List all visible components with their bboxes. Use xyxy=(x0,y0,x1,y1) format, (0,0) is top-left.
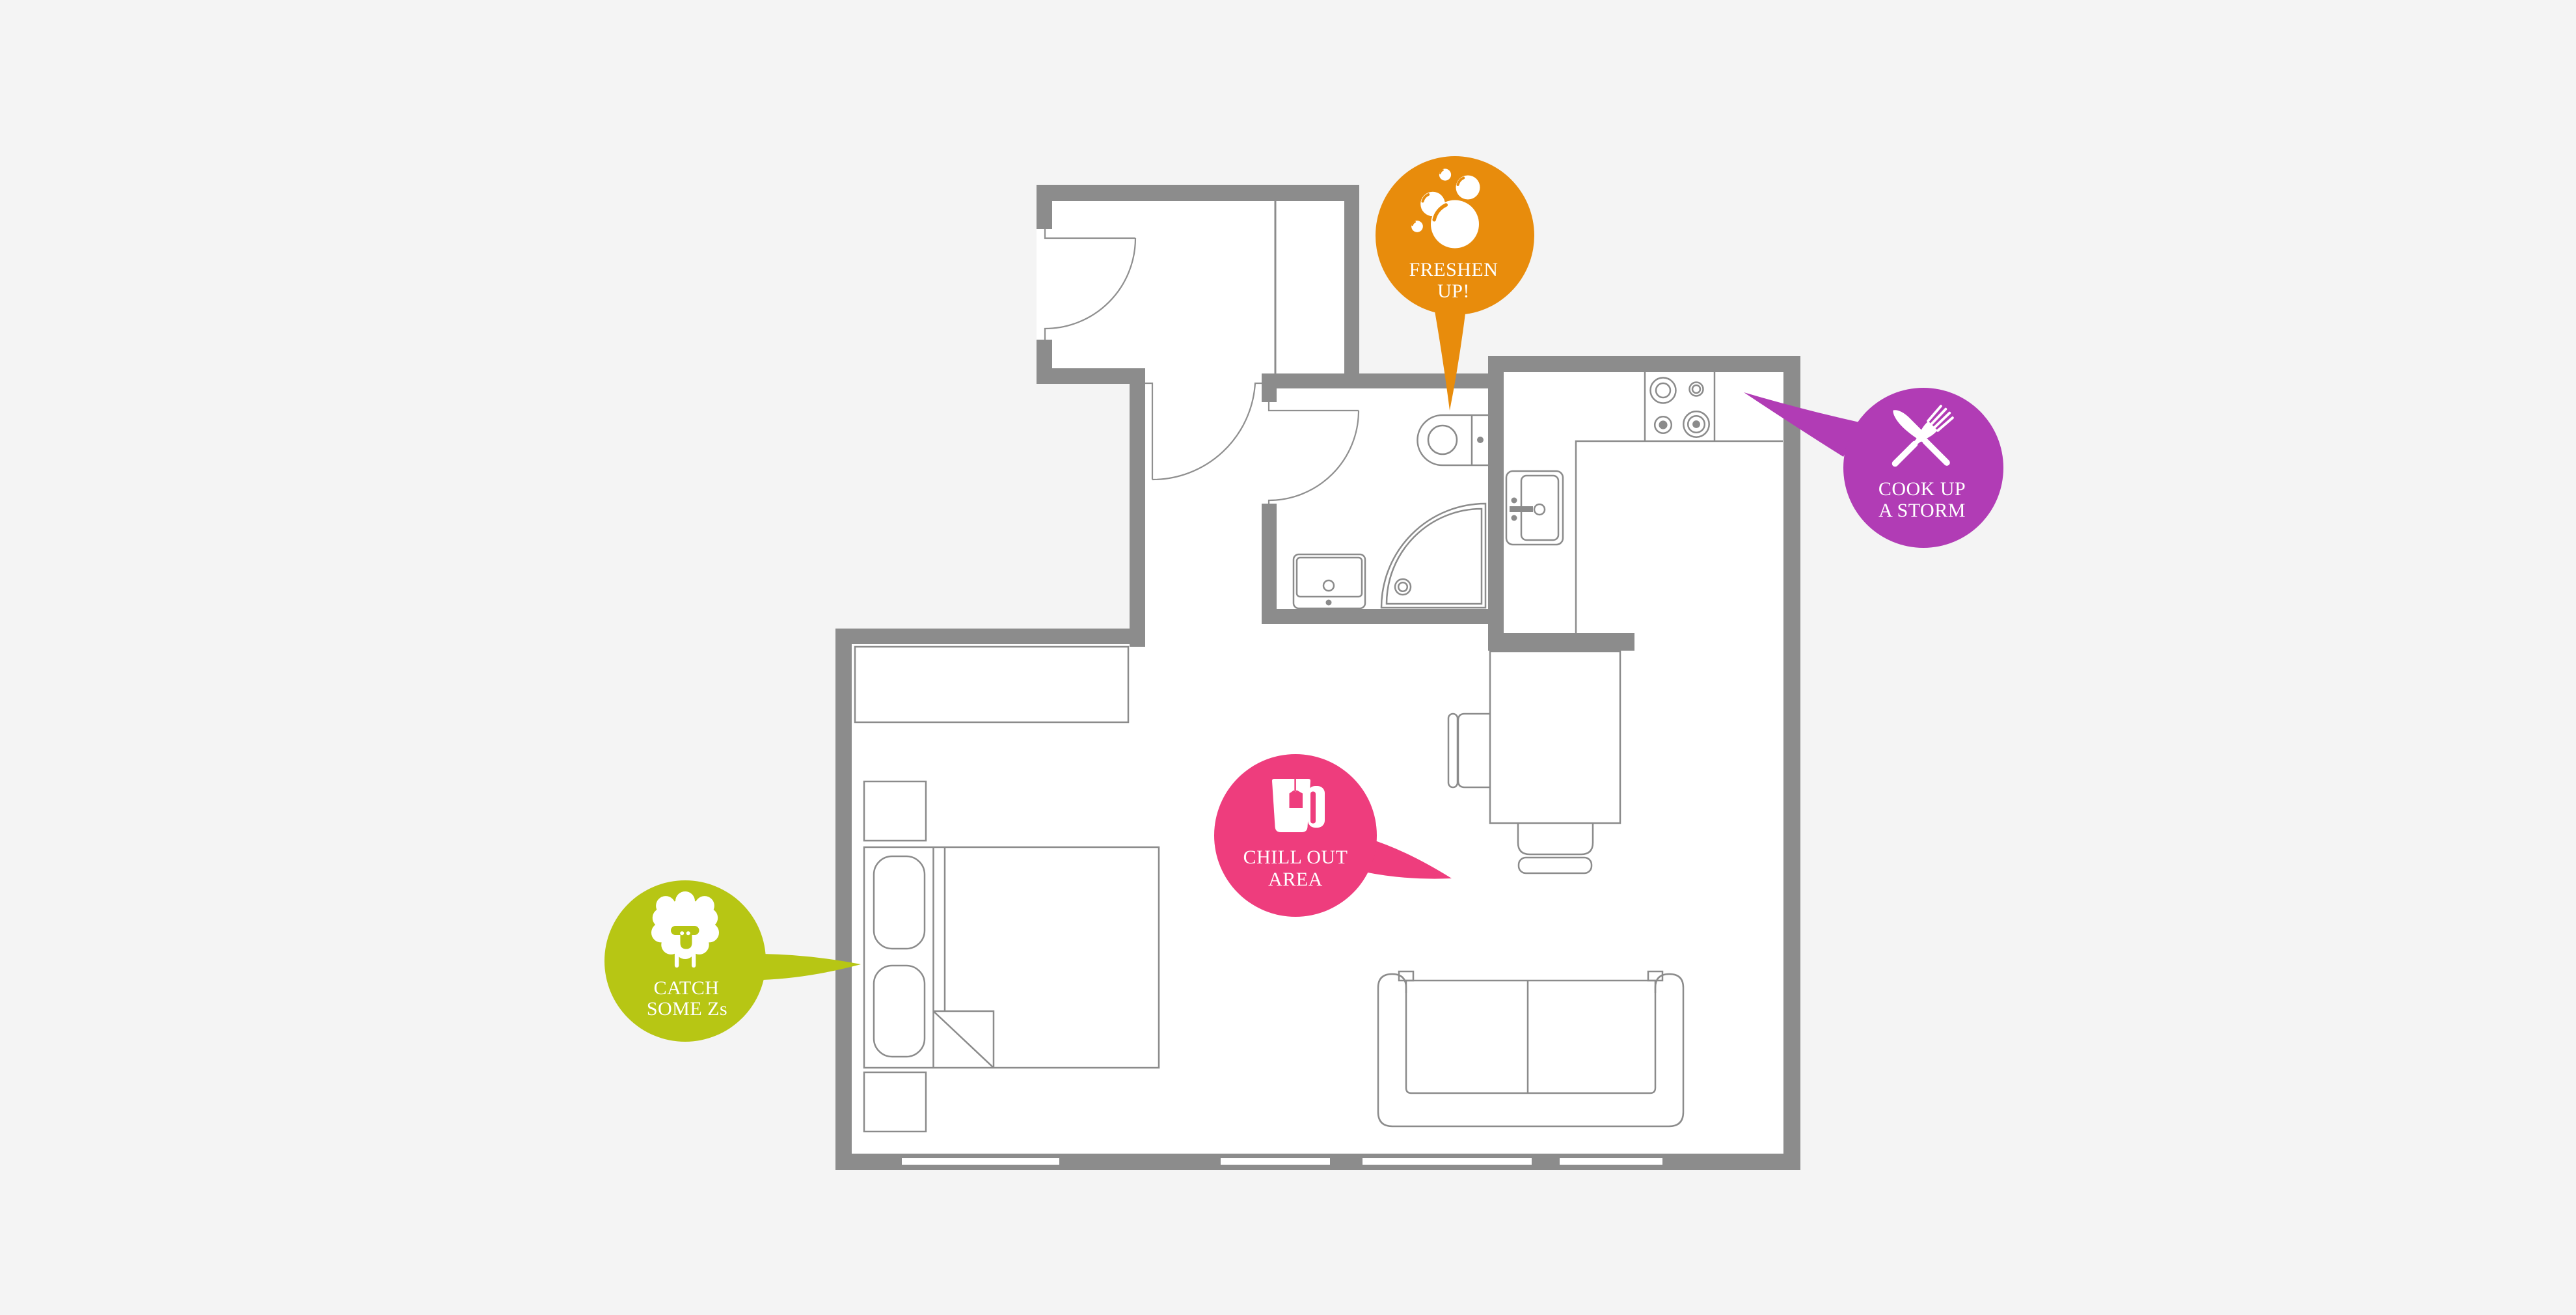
svg-text:A STORM: A STORM xyxy=(1878,500,1966,521)
svg-text:CATCH: CATCH xyxy=(654,977,720,999)
svg-text:AREA: AREA xyxy=(1268,869,1323,890)
svg-text:COOK UP: COOK UP xyxy=(1878,478,1966,500)
svg-text:CHILL OUT: CHILL OUT xyxy=(1243,847,1348,868)
svg-text:FRESHEN: FRESHEN xyxy=(1409,259,1498,280)
svg-text:UP!: UP! xyxy=(1437,280,1470,302)
svg-text:SOME Zs: SOME Zs xyxy=(647,998,727,1020)
